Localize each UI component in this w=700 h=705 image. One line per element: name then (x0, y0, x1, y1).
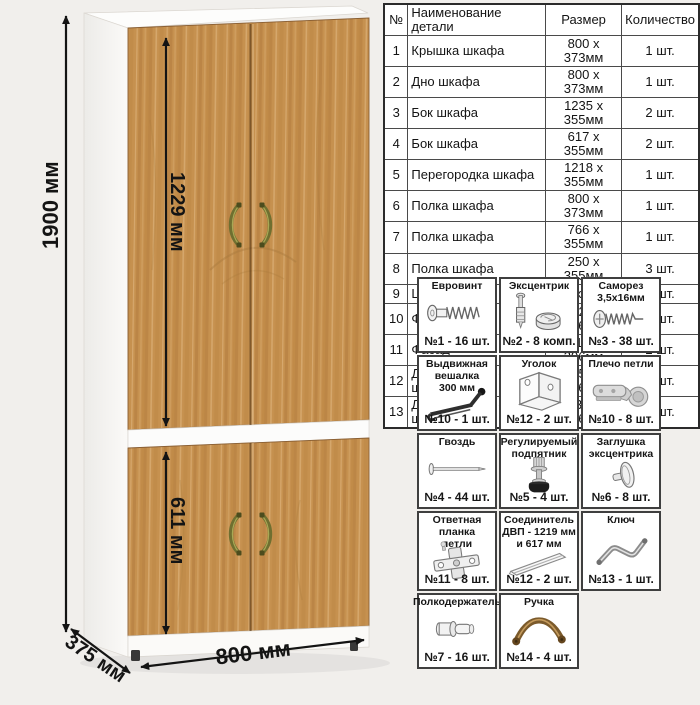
part-number: 9 (384, 284, 408, 303)
col-header-qty: Количество (622, 4, 699, 36)
part-number: 11 (384, 334, 408, 365)
part-number: 3 (384, 98, 408, 129)
hardware-item-eccentric: Эксцентрик №2 - 8 комп. (499, 277, 579, 353)
hardware-item-hinge-arm: Плечо петли №10 - 8 шт. (581, 355, 661, 431)
col-header-size: Размер (546, 4, 622, 36)
part-number: 13 (384, 396, 408, 428)
part-quantity: 2 шт. (622, 98, 699, 129)
part-quantity: 1 шт. (622, 36, 699, 67)
eccentric-cam-icon (505, 293, 573, 334)
hardware-item-count: №14 - 4 шт. (506, 650, 572, 664)
hardware-item-nail: Гвоздь №4 - 44 шт. (417, 433, 497, 509)
hardware-item-shelf-pin: Полкодержатель №7 - 16 шт. (417, 593, 497, 669)
upper-doors (128, 18, 369, 430)
hardware-item-title: Плечо петли (588, 359, 653, 371)
hardware-grid: Евровинт №1 - 16 шт. Эксцентрик (417, 277, 661, 669)
hardware-item-cam-cover: Заглушка эксцентрика №6 - 8 шт. (581, 433, 661, 509)
part-quantity: 2 шт. (622, 129, 699, 160)
dimension-lower-door-label: 611 мм (166, 497, 188, 564)
table-row: 6 Полка шкафа 800 x 373мм 1 шт. (384, 191, 699, 222)
hardware-item-title: Ключ (607, 515, 635, 527)
hardware-item-count: №6 - 8 шт. (592, 490, 651, 504)
adjustable-foot-icon (512, 461, 566, 491)
col-header-name: Наименование детали (408, 4, 546, 36)
hardware-item-count: №12 - 2 шт. (506, 412, 572, 426)
table-row: 7 Полка шкафа 766 x 355мм 1 шт. (384, 222, 699, 253)
hardware-item-count: №7 - 16 шт. (424, 650, 490, 664)
hardware-item-title: Евровинт (432, 281, 483, 293)
part-number: 4 (384, 129, 408, 160)
part-name: Бок шкафа (408, 129, 546, 160)
assembly-sheet: { "diagram": { "height_label": "1900 мм"… (0, 0, 700, 700)
hex-key-icon (589, 527, 653, 572)
part-size: 1235 x 355мм (546, 98, 622, 129)
dimension-height-label: 1900 мм (38, 161, 63, 249)
part-size: 617 x 355мм (546, 129, 622, 160)
hardware-item-hinge-plate: Ответная планка петли №11 - 8 шт. (417, 511, 497, 591)
table-row: 4 Бок шкафа 617 x 355мм 2 шт. (384, 129, 699, 160)
hardware-item-count: №13 - 1 шт. (588, 572, 654, 586)
parts-table-header-row: № Наименование детали Размер Количество (384, 4, 699, 36)
hardware-item-title: Полкодержатель (413, 597, 501, 609)
wardrobe-side (84, 13, 128, 657)
part-name: Крышка шкафа (408, 36, 546, 67)
cam-cover-icon (594, 461, 648, 491)
dimension-upper-door-label: 1229 мм (166, 172, 188, 252)
hardware-item-title: Ручка (524, 597, 554, 609)
hardware-item-count: №1 - 16 шт. (424, 334, 490, 348)
hardware-item-hanger: Выдвижная вешалка 300 мм №10 - 1 шт. (417, 355, 497, 431)
part-size: 766 x 355мм (546, 222, 622, 253)
part-name: Бок шкафа (408, 98, 546, 129)
corner-bracket-icon (508, 371, 570, 412)
hardware-item-count: №12 - 2 шт. (506, 572, 572, 586)
hinge-plate-icon (425, 550, 489, 572)
hardware-item-title: Гвоздь (439, 437, 476, 449)
part-quantity: 1 шт. (622, 191, 699, 222)
hardware-item-count: №11 - 8 шт. (425, 572, 490, 586)
part-number: 12 (384, 365, 408, 396)
hardware-item-foot: Регулируемый подпятник №5 - 4 шт. (499, 433, 579, 509)
hardware-item-title: Соединитель ДВП - 1219 мм и 617 мм (502, 515, 576, 550)
hardware-item-count: №4 - 44 шт. (424, 490, 490, 504)
table-row: 5 Перегородка шкафа 1218 x 355мм 1 шт. (384, 160, 699, 191)
hdf-connector-icon (505, 550, 573, 572)
part-quantity: 1 шт. (622, 160, 699, 191)
part-number: 5 (384, 160, 408, 191)
hardware-item-count: №3 - 38 шт. (588, 334, 654, 348)
lower-doors (128, 438, 369, 636)
euroscrew-icon (422, 293, 492, 334)
hardware-item-key: Ключ №13 - 1 шт. (581, 511, 661, 591)
part-number: 1 (384, 36, 408, 67)
part-number: 2 (384, 67, 408, 98)
part-name: Полка шкафа (408, 222, 546, 253)
table-row: 1 Крышка шкафа 800 x 373мм 1 шт. (384, 36, 699, 67)
part-size: 1218 x 355мм (546, 160, 622, 191)
part-name: Дно шкафа (408, 67, 546, 98)
hinge-arm-icon (587, 371, 655, 412)
wardrobe-diagram: 1900 мм 1229 мм 611 мм 800 мм 375 мм (0, 0, 415, 705)
table-row: 2 Дно шкафа 800 x 373мм 1 шт. (384, 67, 699, 98)
hardware-item-ugolok: Уголок №12 - 2 шт. (499, 355, 579, 431)
hardware-item-title: Саморез 3,5х16мм (597, 281, 645, 305)
part-number: 8 (384, 253, 408, 284)
wardrobe-foot (131, 650, 140, 661)
part-quantity: 1 шт. (622, 67, 699, 98)
part-number: 10 (384, 303, 408, 334)
part-number: 7 (384, 222, 408, 253)
part-size: 800 x 373мм (546, 67, 622, 98)
handle-icon (506, 609, 572, 650)
pullout-hanger-icon (422, 394, 492, 412)
nail-icon (423, 449, 491, 490)
hardware-item-eurovint: Евровинт №1 - 16 шт. (417, 277, 497, 353)
col-header-num: № (384, 4, 408, 36)
part-size: 800 x 373мм (546, 36, 622, 67)
table-row: 3 Бок шкафа 1235 x 355мм 2 шт. (384, 98, 699, 129)
hardware-item-count: №5 - 4 шт. (510, 490, 569, 504)
hardware-item-samorez: Саморез 3,5х16мм №3 - 38 шт. (581, 277, 661, 353)
hardware-item-count: №10 - 1 шт. (424, 412, 490, 426)
wardrobe-illustration: 1900 мм 1229 мм 611 мм 800 мм 375 мм (0, 0, 415, 700)
hardware-item-count: №10 - 8 шт. (588, 412, 654, 426)
shelf-pin-icon (429, 609, 485, 650)
part-quantity: 1 шт. (622, 222, 699, 253)
part-name: Полка шкафа (408, 191, 546, 222)
hardware-item-handle: Ручка №14 - 4 шт. (499, 593, 579, 669)
part-number: 6 (384, 191, 408, 222)
hardware-item-count: №2 - 8 комп. (502, 334, 575, 348)
part-size: 800 x 373мм (546, 191, 622, 222)
self-tapping-screw-icon (589, 305, 653, 335)
part-name: Перегородка шкафа (408, 160, 546, 191)
hardware-item-connector: Соединитель ДВП - 1219 мм и 617 мм №12 -… (499, 511, 579, 591)
